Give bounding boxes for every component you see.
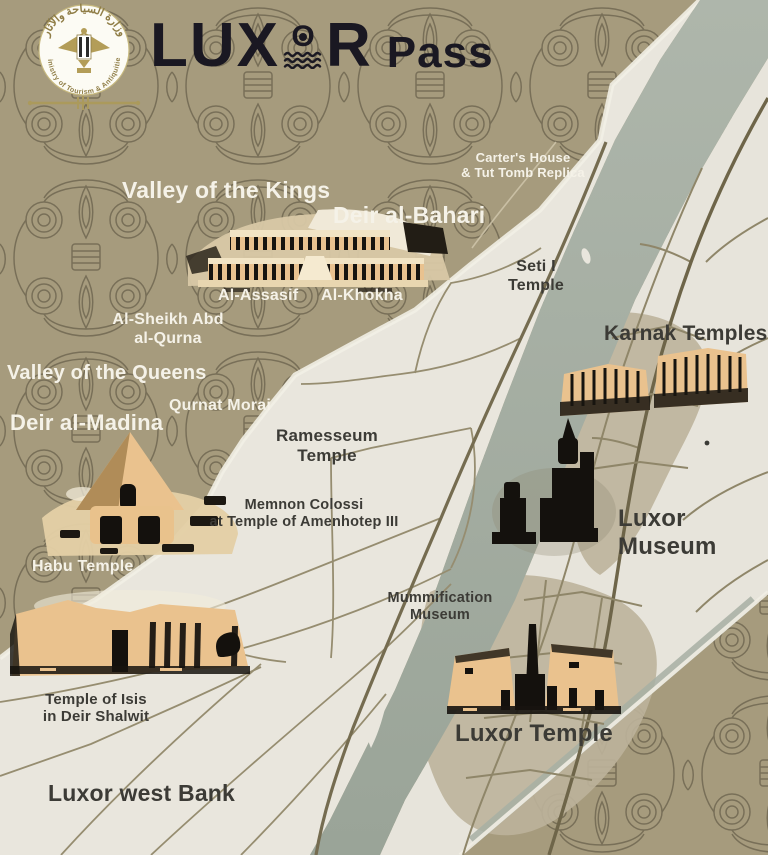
- label-line: Deir al-Madina: [10, 410, 163, 436]
- sceptre-ornament-icon: [28, 96, 140, 110]
- water-waves-icon: [283, 51, 323, 69]
- label-line: Luxor west Bank: [48, 780, 235, 807]
- label-line: Temple of Isis: [43, 691, 149, 708]
- label-line: Museum: [388, 607, 493, 624]
- label-qurnat-morai: Qurnat Morai: [169, 397, 271, 416]
- label-temple-of-isis: Temple of Isis in Deir Shalwit: [43, 691, 149, 726]
- ministry-emblem: وزارة السياحة والآثار Ministry of Touris…: [20, 2, 148, 114]
- label-line: Qurnat Morai: [169, 397, 271, 416]
- label-line: Seti I: [508, 258, 564, 277]
- label-line: Luxor Temple: [455, 720, 613, 748]
- luxor-pass-map-poster: Carter's House & Tut Tomb Replica Valley…: [0, 0, 768, 855]
- sun-disk-o: O: [291, 25, 314, 48]
- luxor-pass-wordmark: LU X O R Pass: [150, 22, 494, 70]
- label-line: Mummification: [388, 590, 493, 607]
- label-line: Deir al-Bahari: [333, 202, 485, 229]
- label-line: Karnak Temples: [604, 322, 767, 346]
- label-mummification-museum: Mummification Museum: [388, 590, 493, 624]
- label-habu-temple: Habu Temple: [32, 558, 133, 577]
- label-line: Carter's House: [461, 150, 585, 165]
- map-point-dot: [705, 441, 710, 446]
- label-line: Luxor: [618, 505, 717, 533]
- label-karnak-temples: Karnak Temples: [604, 322, 767, 346]
- label-line: Al-Assasif: [218, 287, 298, 306]
- label-line: Valley of the Queens: [7, 362, 207, 385]
- wordmark-r: R: [326, 22, 373, 70]
- wordmark-lu: LU: [150, 22, 237, 70]
- wordmark-pass: Pass: [387, 36, 494, 70]
- label-seti-i-temple: Seti I Temple: [508, 258, 564, 295]
- label-luxor-west-bank: Luxor west Bank: [48, 780, 235, 807]
- header: وزارة السياحة والآثار Ministry of Touris…: [0, 0, 768, 120]
- label-line: Museum: [618, 533, 717, 561]
- label-al-khokha: Al-Khokha: [321, 287, 403, 306]
- label-ramesseum-temple: Ramesseum Temple: [276, 426, 378, 465]
- label-luxor-temple: Luxor Temple: [455, 720, 613, 748]
- label-line: Ramesseum: [276, 426, 378, 446]
- label-line: Temple: [508, 277, 564, 296]
- label-line: Al-Sheikh Abd: [112, 311, 223, 330]
- habu-temple-illustration: [10, 590, 250, 676]
- label-line: at Temple of Amenhotep III: [210, 514, 399, 531]
- label-line: Temple: [276, 446, 378, 466]
- label-al-assasif: Al-Assasif: [218, 287, 298, 306]
- label-carters-house: Carter's House & Tut Tomb Replica: [461, 150, 585, 180]
- label-al-sheikh-abd-al-qurna: Al-Sheikh Abd al-Qurna: [112, 311, 223, 348]
- label-memnon-colossi: Memnon Colossi at Temple of Amenhotep II…: [210, 497, 399, 531]
- label-line: in Deir Shalwit: [43, 708, 149, 725]
- label-deir-al-madina: Deir al-Madina: [10, 410, 163, 436]
- wordmark-x: X: [237, 22, 280, 70]
- wordmark-sun-disk-and-water: O: [283, 25, 323, 70]
- label-line: al-Qurna: [112, 330, 223, 349]
- label-luxor-museum: Luxor Museum: [618, 505, 717, 561]
- label-line: Habu Temple: [32, 558, 133, 577]
- label-valley-of-the-queens: Valley of the Queens: [7, 362, 207, 385]
- label-line: Al-Khokha: [321, 287, 403, 306]
- label-deir-al-bahari: Deir al-Bahari: [333, 202, 485, 229]
- label-line: & Tut Tomb Replica: [461, 165, 585, 180]
- label-line: Valley of the Kings: [122, 177, 330, 204]
- label-line: Memnon Colossi: [210, 497, 399, 514]
- label-valley-of-the-kings: Valley of the Kings: [122, 177, 330, 204]
